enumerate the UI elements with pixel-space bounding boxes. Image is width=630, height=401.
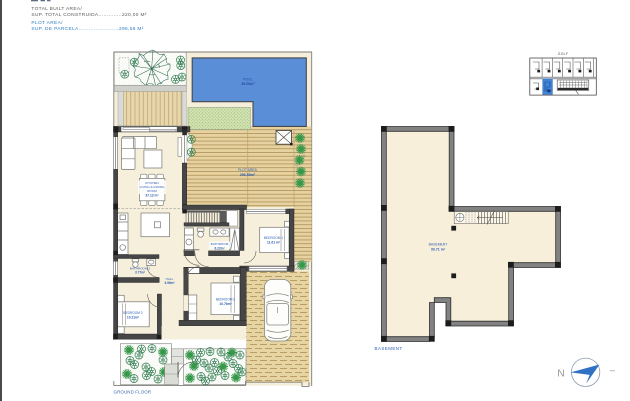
svg-text:3.77m²: 3.77m² [135,271,145,275]
svg-text:TOTAL BUILT AREA/: TOTAL BUILT AREA/ [31,6,82,12]
svg-text:PLOT AREA/: PLOT AREA/ [31,20,63,26]
svg-text:BEDROOM 1: BEDROOM 1 [264,236,283,240]
svg-text:93.71 m²: 93.71 m² [431,247,446,251]
svg-text:10.76m²: 10.76m² [219,302,232,306]
svg-text:ROOM: ROOM [147,189,157,193]
svg-text:39.00m²: 39.00m² [241,82,255,86]
svg-text:BEDROOM 3: BEDROOM 3 [123,311,142,315]
svg-text:10.21m²: 10.21m² [127,315,140,319]
svg-text:GROUND FLOOR: GROUND FLOOR [114,389,152,394]
svg-text:SUP. TOTAL CONSTRUIDA.........: SUP. TOTAL CONSTRUIDA..............220,0… [31,12,146,18]
svg-text:GOLF: GOLF [558,52,568,56]
svg-text:37.13 m²: 37.13 m² [145,194,159,198]
svg-text:11.61 m²: 11.61 m² [267,240,281,244]
svg-text:296.58m²: 296.58m² [240,173,256,177]
svg-text:POOL: POOL [243,78,253,82]
svg-text:4.96m²: 4.96m² [164,281,174,285]
svg-text:N: N [557,367,565,379]
svg-text:SUP. DE PARCELA...............: SUP. DE PARCELA........................2… [31,26,143,32]
svg-text:BEDROOM 2: BEDROOM 2 [216,298,235,302]
svg-text:PLOT AREA: PLOT AREA [238,168,258,172]
svg-text:BASEMENT: BASEMENT [375,346,403,351]
svg-text:BASEMENT: BASEMENT [429,243,448,247]
svg-text:6.22m²: 6.22m² [214,246,224,250]
